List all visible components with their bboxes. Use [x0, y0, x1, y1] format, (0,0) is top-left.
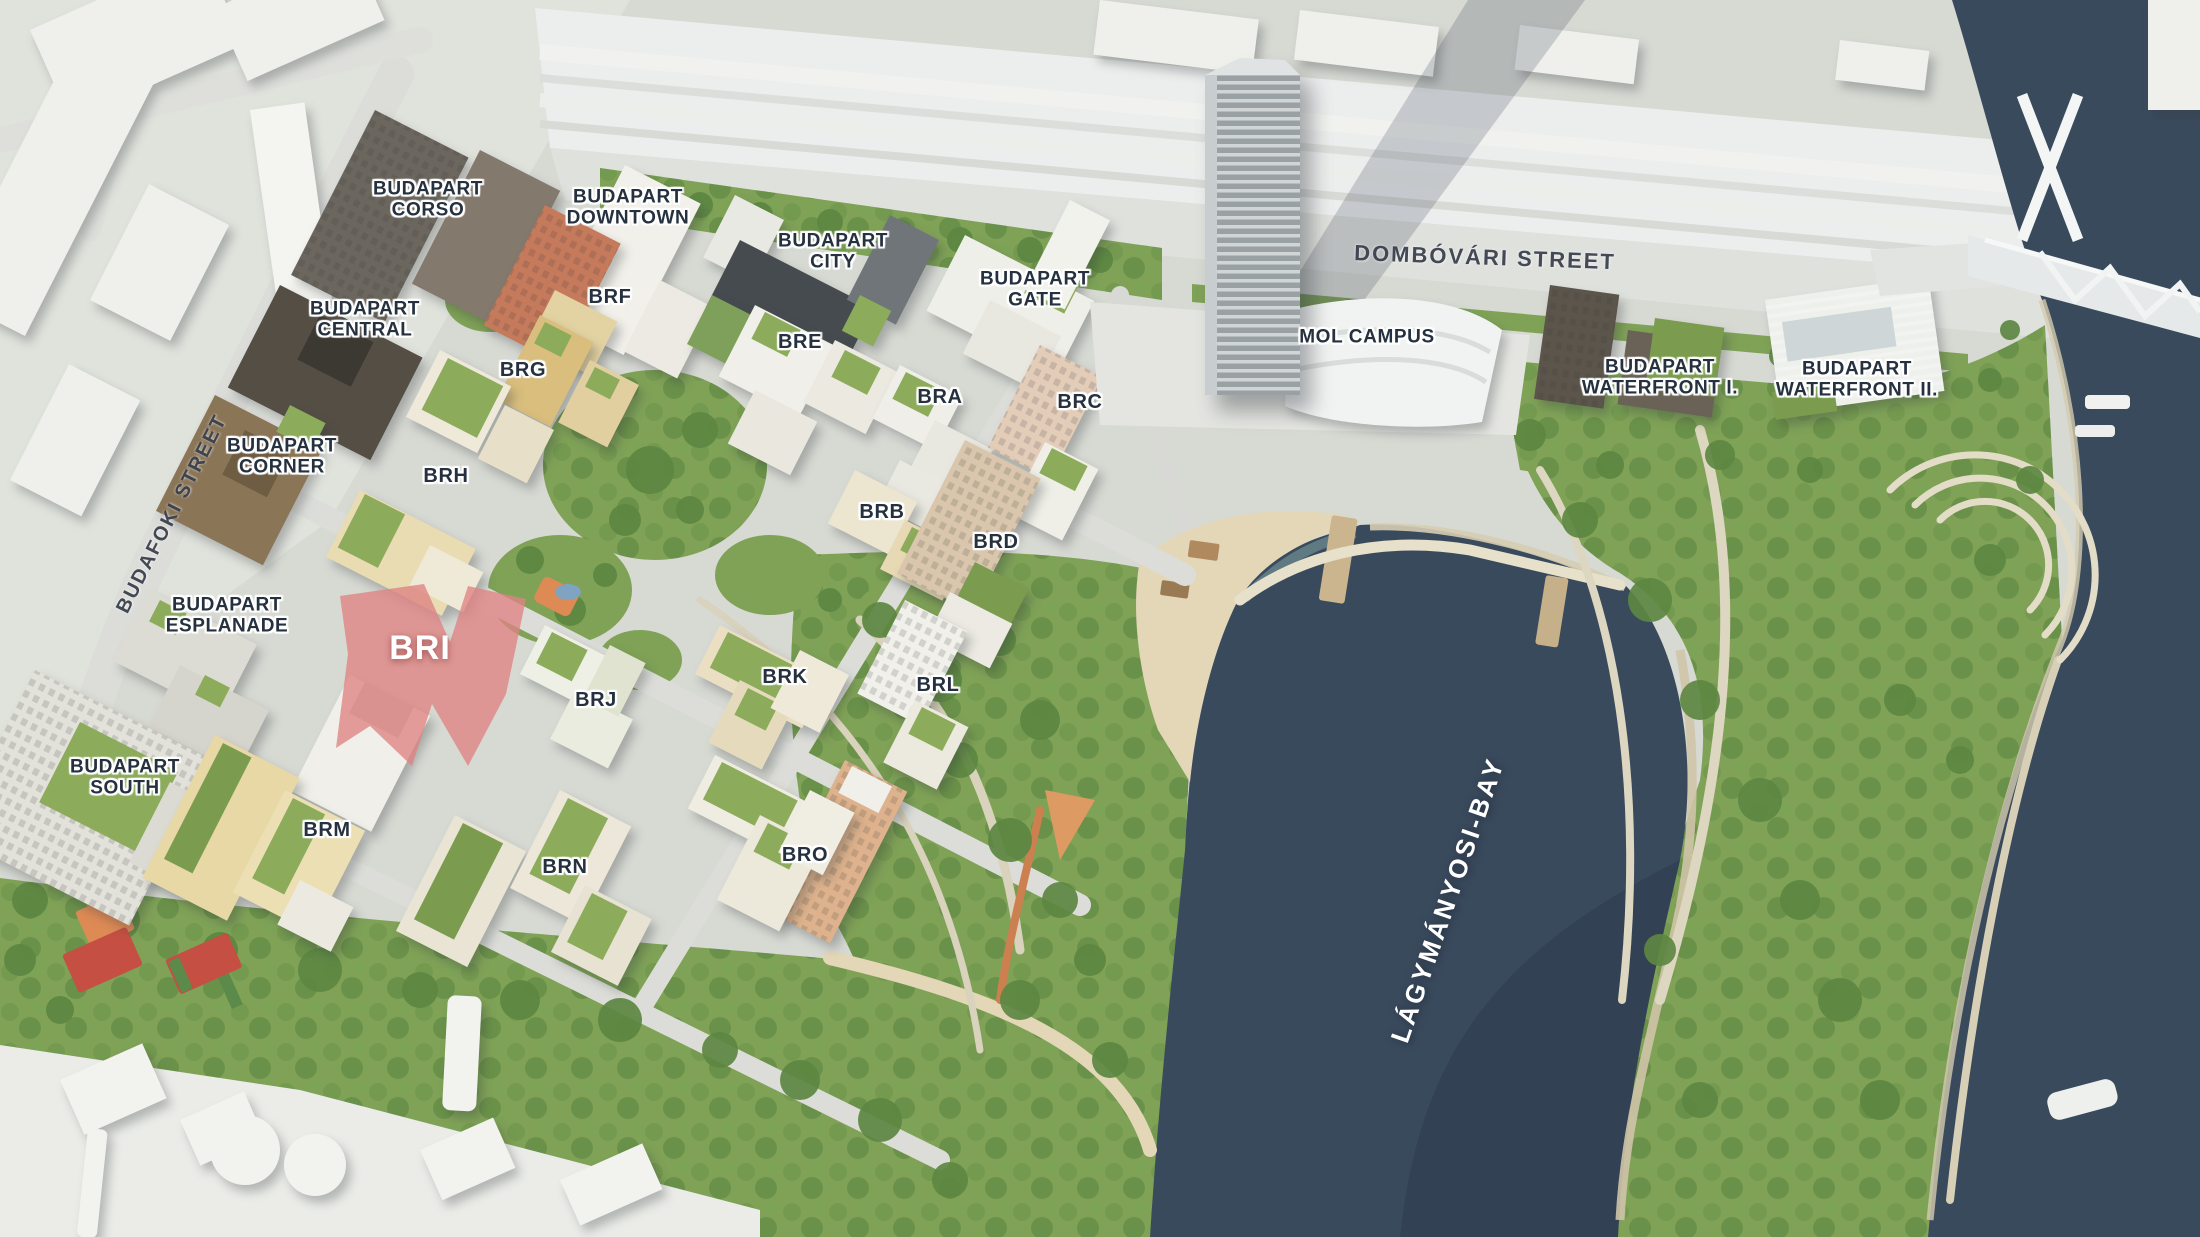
label-budapart-waterfront-1: BUDAPART WATERFRONT I.: [1582, 357, 1738, 400]
label-bra: BRA: [917, 386, 962, 408]
label-brm: BRM: [303, 819, 350, 841]
label-brd: BRD: [973, 531, 1018, 553]
label-budapart-south: BUDAPART SOUTH: [70, 757, 180, 800]
label-bro: BRO: [782, 844, 828, 866]
label-budapart-corso: BUDAPART CORSO: [373, 179, 483, 222]
label-dombovari-street: DOMBÓVÁRI STREET: [1354, 241, 1616, 275]
label-brj: BRJ: [575, 689, 617, 711]
label-brh: BRH: [423, 465, 468, 487]
aerial-rendering: BUDAPART CORSOBUDAPART DOWNTOWNBUDAPART …: [0, 0, 2200, 1237]
label-budafoki-street: BUDAFOKI STREET: [112, 411, 232, 617]
label-budapart-waterfront-2: BUDAPART WATERFRONT II.: [1776, 359, 1938, 402]
label-mol-campus: MOL CAMPUS: [1299, 326, 1434, 347]
label-budapart-gate: BUDAPART GATE: [980, 269, 1090, 312]
label-budapart-central: BUDAPART CENTRAL: [310, 299, 420, 342]
label-bre: BRE: [778, 331, 822, 353]
label-brk: BRK: [762, 666, 807, 688]
label-lagymanyosi-bay: LÁGYMÁNYOSI-BAY: [1385, 754, 1510, 1047]
label-budapart-corner: BUDAPART CORNER: [227, 436, 337, 479]
map-labels: BUDAPART CORSOBUDAPART DOWNTOWNBUDAPART …: [0, 0, 2200, 1237]
label-brc: BRC: [1057, 391, 1102, 413]
label-brb: BRB: [859, 501, 904, 523]
label-bri: BRI: [389, 629, 451, 667]
label-budapart-esplanade: BUDAPART ESPLANADE: [166, 595, 289, 638]
label-brl: BRL: [917, 674, 960, 696]
label-brg: BRG: [500, 359, 546, 381]
label-budapart-city: BUDAPART CITY: [778, 231, 888, 274]
label-budapart-downtown: BUDAPART DOWNTOWN: [567, 187, 690, 230]
label-brn: BRN: [542, 856, 587, 878]
label-brf: BRF: [589, 286, 632, 308]
